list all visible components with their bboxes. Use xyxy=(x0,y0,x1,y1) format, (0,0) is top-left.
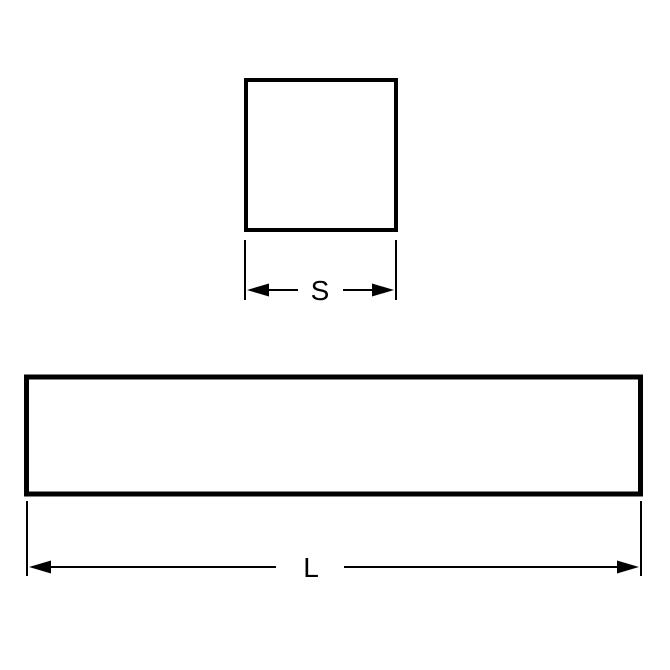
l-dimension-label: L xyxy=(303,552,319,583)
dimension-drawing: S L xyxy=(0,0,670,670)
s-arrow-right-icon xyxy=(372,284,394,297)
l-arrow-right-icon xyxy=(617,561,639,574)
length-view: L xyxy=(27,377,642,583)
square-outline xyxy=(246,80,396,230)
s-dimension-label: S xyxy=(311,275,330,306)
diagram-canvas: S L xyxy=(0,0,670,670)
cross-section-view: S xyxy=(245,80,396,306)
l-arrow-left-icon xyxy=(29,561,51,574)
bar-outline xyxy=(27,377,641,494)
s-arrow-left-icon xyxy=(247,284,269,297)
